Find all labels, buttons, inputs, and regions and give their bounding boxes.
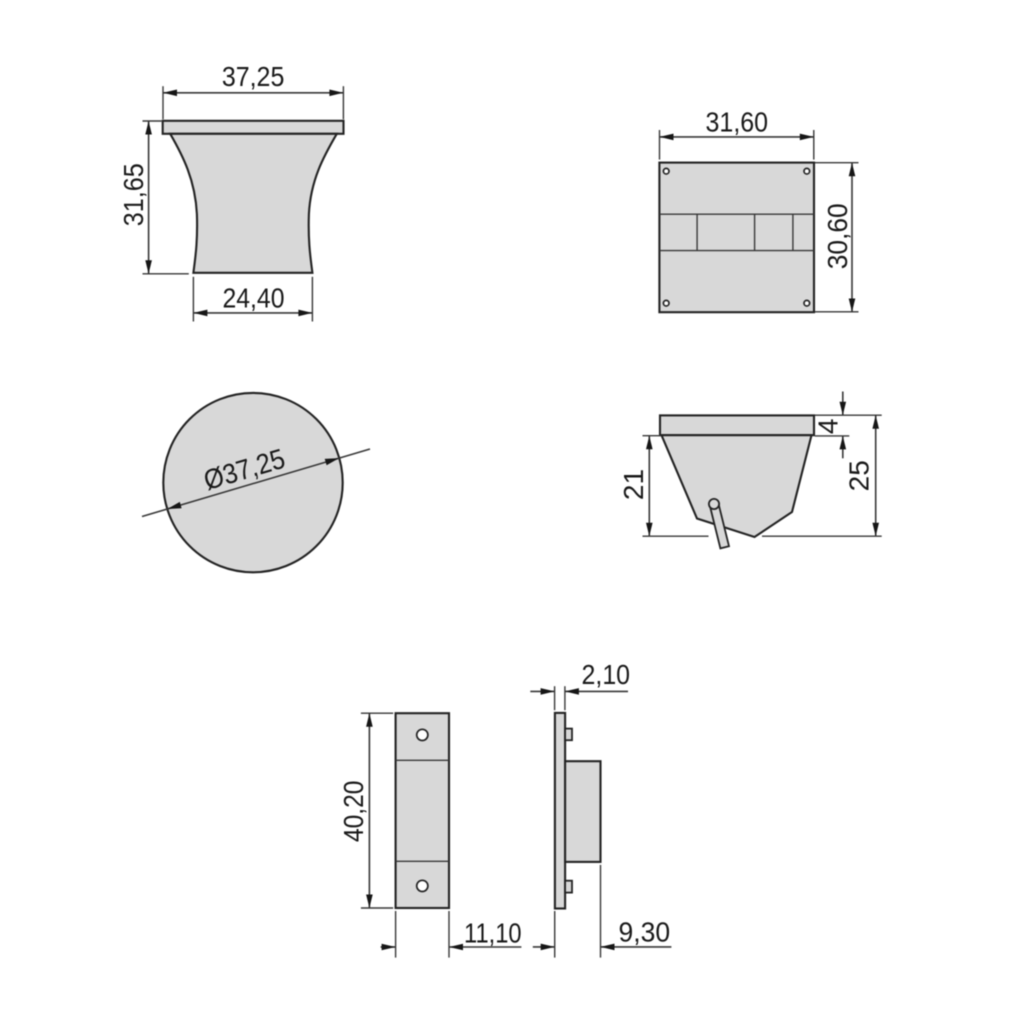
svg-text:30,60: 30,60 — [822, 203, 853, 269]
svg-text:11,10: 11,10 — [464, 917, 522, 948]
svg-text:40,20: 40,20 — [338, 781, 369, 843]
svg-text:9,30: 9,30 — [619, 917, 671, 948]
svg-text:21: 21 — [618, 469, 649, 500]
svg-text:2,10: 2,10 — [582, 659, 631, 690]
svg-text:25: 25 — [843, 460, 874, 491]
svg-text:4: 4 — [813, 419, 844, 435]
svg-text:31,60: 31,60 — [706, 106, 769, 137]
svg-text:31,65: 31,65 — [118, 163, 149, 226]
svg-text:37,25: 37,25 — [222, 61, 285, 92]
svg-text:24,40: 24,40 — [223, 283, 285, 314]
